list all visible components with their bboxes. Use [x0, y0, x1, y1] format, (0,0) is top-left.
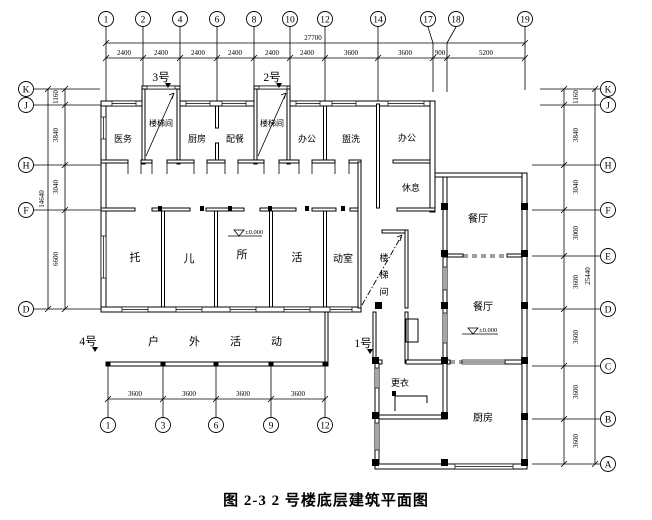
axis-label: F [605, 207, 610, 217]
axis-label: D [605, 306, 612, 316]
room-label-changing: 更衣 [391, 377, 409, 388]
axis-label: 3 [161, 422, 166, 432]
axis-label: D [23, 306, 30, 316]
level-marks: ±0.000 ±0.000 [228, 229, 498, 334]
axis-label: 4 [178, 16, 183, 26]
dim-text: 3600 [572, 275, 580, 290]
axis-label: J [606, 102, 610, 112]
axis-label: 6 [215, 16, 220, 26]
axis-label: B [605, 416, 611, 426]
dim-text: 3600 [128, 390, 143, 398]
axis-label: 1 [104, 16, 109, 26]
room-label-medical: 医务 [114, 133, 132, 144]
dim-text: 1160 [572, 90, 580, 104]
axis-label: F [23, 207, 28, 217]
room-label-kitchen: 厨房 [188, 133, 206, 144]
axis-label: 1 [106, 422, 111, 432]
room-label-stairwell-1-char: 楼 [379, 252, 388, 263]
dim-right-overall: 25440 [584, 267, 592, 285]
room-label-office-2: 办公 [398, 132, 416, 143]
dim-text: 3040 [572, 180, 580, 195]
room-label-stairwell-b: 楼梯间 [260, 118, 284, 128]
dim-text: 2400 [154, 49, 169, 57]
room-label-dining-1: 餐厅 [468, 212, 488, 225]
axis-label: H [605, 162, 612, 172]
axis-label: E [605, 253, 611, 263]
axis-label: 8 [252, 16, 257, 26]
room-label-tuo: 托 [130, 250, 141, 264]
room-label-office-1: 办公 [298, 133, 316, 144]
axis-label: 6 [214, 422, 219, 432]
entrance-label-4: 4号 [79, 335, 96, 348]
dim-text: 3600 [291, 390, 306, 398]
floor-plan-sheet: 27700 2400 2400 2400 2400 2400 2400 3600… [0, 0, 652, 520]
axis-label: C [605, 363, 611, 373]
dim-text: 3840 [572, 128, 580, 143]
room-label-rest: 休息 [402, 182, 420, 193]
axis-label: J [24, 102, 28, 112]
dim-text: 3040 [52, 180, 60, 195]
figure-caption: 图 2-3 2 号楼底层建筑平面图 [223, 491, 429, 509]
dim-text: 3600 [398, 49, 413, 57]
dim-text: 2400 [228, 49, 243, 57]
axis-label: K [605, 86, 612, 96]
door-stubs [128, 163, 349, 174]
entrance-label-2: 2号 [263, 71, 280, 84]
level-mark-lower: ±0.000 [479, 327, 497, 334]
dim-text: 3000 [572, 226, 580, 241]
dimension-texts: 27700 2400 2400 2400 2400 2400 2400 3600… [38, 34, 592, 448]
dim-text: 3600 [236, 390, 251, 398]
room-label-dongshi: 动室 [333, 252, 353, 265]
room-label-dining-2: 餐厅 [473, 300, 493, 313]
axis-label: K [23, 86, 30, 96]
entrance-label-1: 1号 [354, 337, 371, 350]
axis-label: A [605, 461, 612, 471]
room-label-stairwell-1-char: 梯 [379, 269, 388, 280]
room-label-kitchen-2: 厨房 [473, 411, 493, 424]
dim-text: 2400 [117, 49, 132, 57]
axis-label: 17 [423, 16, 433, 26]
dim-text: 1160 [52, 90, 60, 104]
axis-label: 9 [269, 422, 274, 432]
room-label-stairwell-1-char: 间 [379, 286, 388, 297]
dim-text: 3600 [572, 385, 580, 400]
room-label-washroom: 盥洗 [342, 133, 360, 144]
dim-text: 3600 [572, 434, 580, 449]
entrance-arrow-icon [367, 349, 373, 354]
room-label-pantry: 配餐 [226, 133, 244, 144]
dim-text: 5200 [479, 49, 494, 57]
grid-leader-lines [34, 27, 600, 464]
level-mark-upper: ±0.000 [245, 229, 263, 236]
dim-text: 2400 [191, 49, 206, 57]
floor-plan-drawing: 27700 2400 2400 2400 2400 2400 2400 3600… [0, 0, 652, 520]
axis-label: 19 [520, 16, 530, 26]
axis-label: 14 [373, 16, 383, 26]
axis-label: 12 [320, 16, 330, 26]
dim-text: 6600 [52, 252, 60, 267]
room-label-suo: 所 [237, 248, 248, 261]
room-label-outdoor-activity: 户外活动 [148, 334, 312, 348]
dim-text: 3840 [52, 128, 60, 143]
room-label-stairwell-a: 楼梯间 [149, 118, 173, 128]
axis-label: 10 [285, 16, 295, 26]
axis-label: 12 [320, 422, 330, 432]
room-label-er: 儿 [184, 252, 195, 265]
dim-top-overall: 27700 [304, 34, 322, 42]
dim-text: 900 [435, 49, 446, 57]
dim-text: 2400 [300, 49, 315, 57]
room-label-huo: 活 [292, 251, 303, 264]
room-labels: 医务 楼梯间 厨房 配餐 楼梯间 办公 盥洗 办公 休息 托 儿 所 活 动室 … [114, 118, 493, 424]
axis-label: 2 [141, 16, 146, 26]
dim-left-overall: 14640 [38, 190, 46, 208]
entrance-arrow-icon [92, 347, 98, 352]
dim-text: 3600 [182, 390, 197, 398]
entrance-label-3: 3号 [152, 71, 169, 84]
axis-label: H [23, 162, 30, 172]
dim-text: 2400 [265, 49, 280, 57]
dim-text: 3600 [572, 330, 580, 345]
dim-text: 3600 [344, 49, 359, 57]
axis-label: 18 [451, 16, 461, 26]
